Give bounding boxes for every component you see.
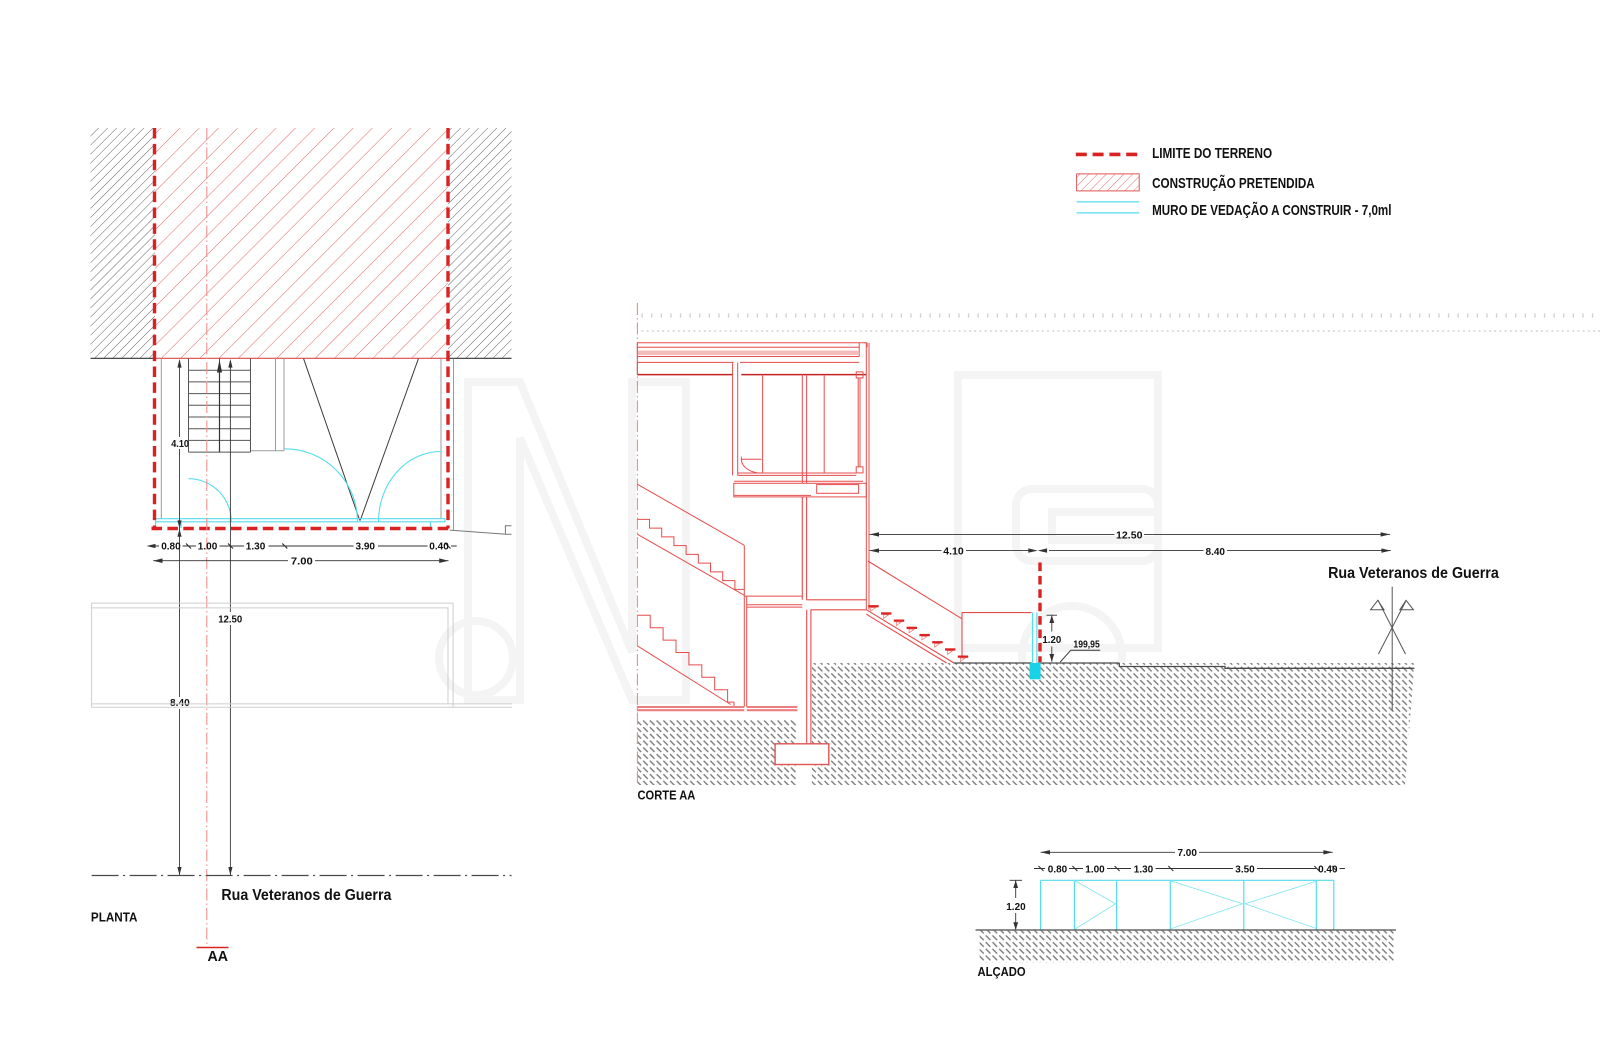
svg-text:LIMITE DO TERRENO: LIMITE DO TERRENO — [1152, 145, 1272, 162]
svg-text:PLANTA: PLANTA — [91, 911, 138, 925]
svg-text:7.00: 7.00 — [1178, 847, 1198, 859]
svg-text:ALÇADO: ALÇADO — [978, 965, 1026, 979]
svg-text:0.40: 0.40 — [1318, 863, 1338, 875]
svg-text:CORTE AA: CORTE AA — [638, 788, 696, 802]
svg-text:CONSTRUÇÃO PRETENDIDA: CONSTRUÇÃO PRETENDIDA — [1152, 174, 1315, 192]
svg-text:Rua Veteranos de Guerra: Rua Veteranos de Guerra — [1328, 565, 1499, 582]
svg-text:1.30: 1.30 — [1134, 863, 1154, 875]
svg-text:Rua Veteranos de Guerra: Rua Veteranos de Guerra — [221, 887, 391, 904]
svg-text:3.50: 3.50 — [1235, 863, 1255, 875]
svg-text:1.20: 1.20 — [1006, 901, 1025, 913]
svg-text:12.50: 12.50 — [218, 614, 242, 626]
svg-text:0.80: 0.80 — [1048, 863, 1068, 875]
svg-text:4.10: 4.10 — [171, 438, 189, 450]
svg-text:AA: AA — [208, 948, 229, 965]
svg-text:0.80: 0.80 — [161, 541, 181, 553]
svg-text:0.40: 0.40 — [429, 541, 449, 553]
svg-text:MURO DE VEDAÇÃO A CONSTRUIR -: MURO DE VEDAÇÃO A CONSTRUIR - 7,0ml — [1152, 201, 1391, 219]
svg-text:4.10: 4.10 — [943, 545, 964, 557]
svg-text:199,95: 199,95 — [1073, 638, 1100, 650]
svg-text:1.30: 1.30 — [246, 541, 266, 553]
svg-text:3.90: 3.90 — [356, 541, 376, 553]
svg-text:1.20: 1.20 — [1042, 634, 1061, 646]
svg-text:7.00: 7.00 — [291, 556, 313, 568]
svg-text:1.00: 1.00 — [198, 541, 218, 553]
svg-text:12.50: 12.50 — [1116, 529, 1143, 541]
svg-text:8.40: 8.40 — [1206, 546, 1226, 558]
svg-text:1.00: 1.00 — [1085, 863, 1105, 875]
